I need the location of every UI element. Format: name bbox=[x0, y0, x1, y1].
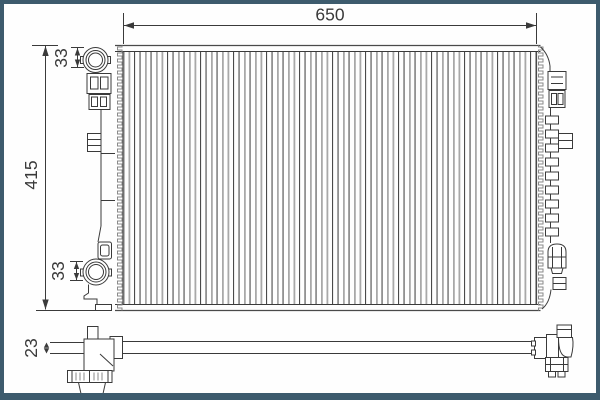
left-tank bbox=[81, 48, 116, 311]
right-tank-ribs bbox=[546, 116, 559, 236]
dimension-23: 23 bbox=[21, 338, 84, 357]
side-left-elbow-fitting bbox=[68, 327, 115, 397]
dim-33-bottom-label: 33 bbox=[48, 261, 68, 280]
radiator-core bbox=[123, 52, 537, 305]
dim-650-label: 650 bbox=[315, 5, 344, 25]
dimension-650: 650 bbox=[124, 5, 537, 45]
side-view-core-bar bbox=[122, 342, 535, 354]
right-tank-serrated-edge bbox=[538, 46, 546, 311]
core-bottom-band bbox=[115, 305, 541, 311]
right-lower-connector bbox=[548, 244, 566, 274]
dim-33-top-label: 33 bbox=[51, 48, 71, 67]
dimension-33-top: 33 bbox=[51, 48, 84, 68]
left-tank-foot bbox=[84, 285, 97, 306]
left-mount-bracket bbox=[88, 134, 102, 152]
dim-23-label: 23 bbox=[21, 338, 41, 357]
radiator-technical-drawing-page: 650 415 33 33 23 bbox=[0, 0, 600, 400]
core-top-band bbox=[115, 46, 541, 52]
left-tank-serrated-edge bbox=[115, 46, 123, 311]
side-right-elbow-fitting bbox=[532, 325, 574, 377]
dim-415-label: 415 bbox=[21, 160, 41, 189]
side-view bbox=[68, 325, 574, 396]
dimension-33-bottom: 33 bbox=[48, 261, 83, 280]
radiator-technical-drawing: 650 415 33 33 23 bbox=[0, 0, 600, 400]
bottom-outlet-port bbox=[81, 259, 112, 285]
top-inlet-port bbox=[81, 48, 111, 73]
front-view bbox=[81, 46, 573, 311]
